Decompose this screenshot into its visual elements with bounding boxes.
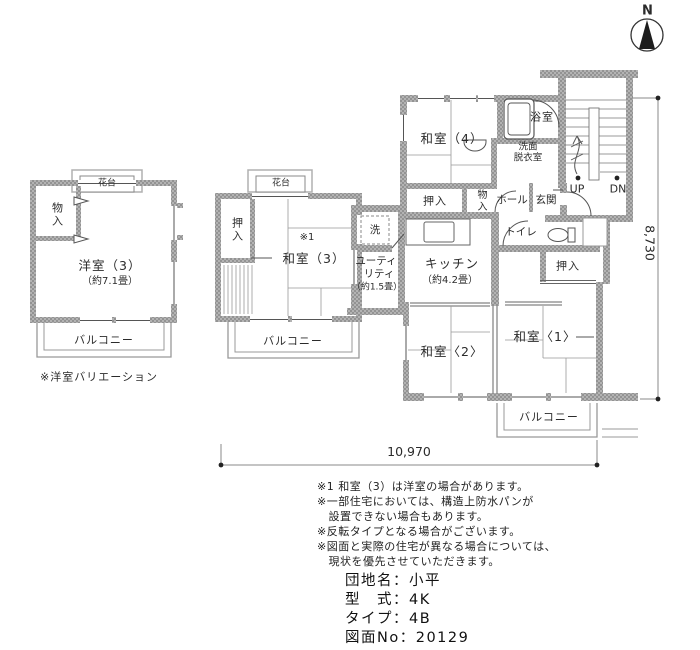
hall-label: ホール <box>496 195 528 206</box>
storage-main-label: 物入 <box>475 189 485 213</box>
main-balcony-label: バルコニー <box>519 412 579 423</box>
kitchen-counter-icon <box>406 219 470 245</box>
footnotes: ※1 和室（3）は洋室の場合があります。 ※一部住宅においては、構造上防水パンが… <box>317 479 556 569</box>
plan-type: タイプ：4B <box>345 610 469 629</box>
bathroom-label: 浴室 <box>530 112 554 123</box>
footnote-line: ※一部住宅においては、構造上防水パンが <box>317 494 556 509</box>
japanese-room-2-label: 和室〈2〉 <box>421 346 484 359</box>
variation-flower-shelf-label: 花台 <box>98 180 116 189</box>
annex-room-label: 和室（3） <box>283 253 346 266</box>
model-type: 型 式：4K <box>345 591 469 610</box>
toilet-label: トイレ <box>505 227 537 238</box>
kitchen-size-label: （約4.2畳） <box>422 276 478 286</box>
stairs-down-label: DN <box>610 184 627 195</box>
footnote-line: ※1 和室（3）は洋室の場合があります。 <box>317 479 556 494</box>
japanese-room-1-label: 和室〈1〉 <box>514 331 577 344</box>
kitchen-label: キッチン <box>425 258 479 271</box>
footnote-line: 設置できない場合もあります。 <box>317 509 556 524</box>
footnote-line: ※反転タイプとなる場合がございます。 <box>317 524 556 539</box>
variation-caption: ※洋室バリエーション <box>40 372 158 383</box>
footnote-line: 現状を優先させていただきます。 <box>317 554 556 569</box>
north-compass-icon <box>631 19 663 51</box>
vertical-dimension-label: 8,730 <box>643 225 656 261</box>
japanese-room-4-label: 和室（4） <box>421 133 484 146</box>
utility-label-line3: （約1.5畳） <box>352 284 402 293</box>
closet-right-label: 押入 <box>556 261 580 272</box>
annex-footnote-ref: ※1 <box>300 233 315 243</box>
veranda-stripe-hatch <box>224 265 252 314</box>
variation-room-size-label: （約7.1畳） <box>82 277 138 287</box>
annex-flower-shelf-label: 花台 <box>272 180 290 189</box>
variation-storage-label: 物入 <box>52 202 63 228</box>
utility-label-line2: リティ <box>364 269 395 280</box>
title-block: 団地名：小平 型 式：4K タイプ：4B 図面No：20129 <box>345 572 469 648</box>
floor-plan-canvas: N 花台 物入 洋室（3） （約7.1畳） バルコニー ※洋室バリエーション 花… <box>0 0 700 650</box>
stairs <box>566 100 626 180</box>
washroom-label-line1: 洗面 <box>518 142 537 152</box>
north-label: N <box>642 5 654 18</box>
drawing-number: 図面No：20129 <box>345 629 469 648</box>
footnote-line: ※図面と実際の住宅が異なる場合については、 <box>317 539 556 554</box>
variation-room-label: 洋室（3） <box>79 260 142 273</box>
stairs-up-label: UP <box>570 184 585 195</box>
annex-closet-label: 押入 <box>232 217 243 243</box>
variation-balcony-label: バルコニー <box>74 335 134 346</box>
utility-label-line1: ユーティ <box>355 256 396 267</box>
entrance-label: 玄関 <box>536 195 557 206</box>
annex-balcony-label: バルコニー <box>263 336 323 347</box>
horizontal-dimension-label: 10,970 <box>387 446 431 459</box>
washroom-label-line2: 脱衣室 <box>514 153 543 163</box>
toilet-icon <box>548 228 575 242</box>
washer-label: 洗 <box>370 225 381 236</box>
estate-name: 団地名：小平 <box>345 572 469 591</box>
closet-top-label: 押入 <box>423 196 447 207</box>
